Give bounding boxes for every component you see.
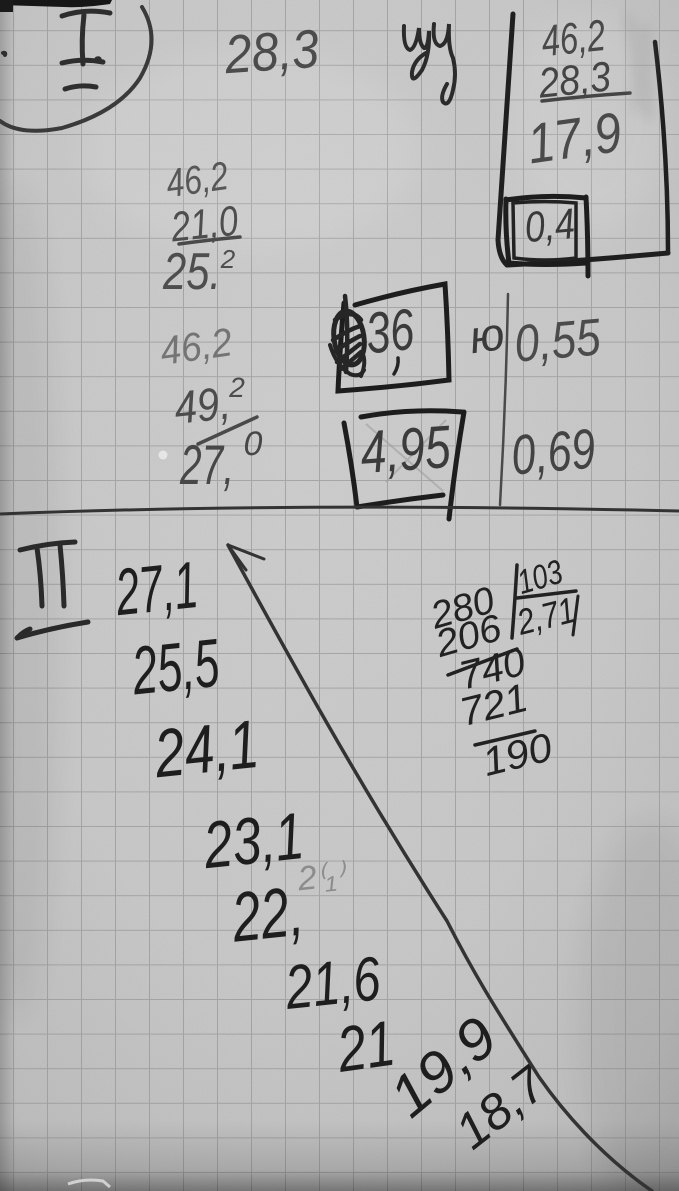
svg-text:2: 2: [220, 244, 236, 274]
svg-text:17,9: 17,9: [523, 100, 625, 175]
svg-text:0,4: 0,4: [523, 200, 577, 252]
svg-text:36: 36: [363, 297, 418, 367]
svg-text:24,1: 24,1: [150, 706, 262, 793]
svg-text:4,95: 4,95: [358, 413, 453, 486]
svg-text:25,5: 25,5: [128, 625, 223, 710]
svg-text:27,: 27,: [179, 433, 234, 496]
svg-text:49,: 49,: [172, 376, 233, 434]
svg-text:22,: 22,: [227, 872, 306, 957]
svg-text:ю: ю: [466, 307, 507, 363]
svg-text:27,1: 27,1: [111, 547, 201, 629]
svg-text:0: 0: [244, 425, 263, 463]
svg-text:28,3: 28,3: [222, 19, 321, 85]
svg-text:2⁽₁⁾: 2⁽₁⁾: [295, 855, 350, 898]
svg-text:0,69: 0,69: [509, 417, 598, 487]
svg-text:0,55: 0,55: [512, 308, 604, 373]
svg-text:25.: 25.: [162, 243, 221, 301]
svg-text:23,1: 23,1: [199, 798, 307, 882]
svg-text:2: 2: [228, 372, 245, 403]
